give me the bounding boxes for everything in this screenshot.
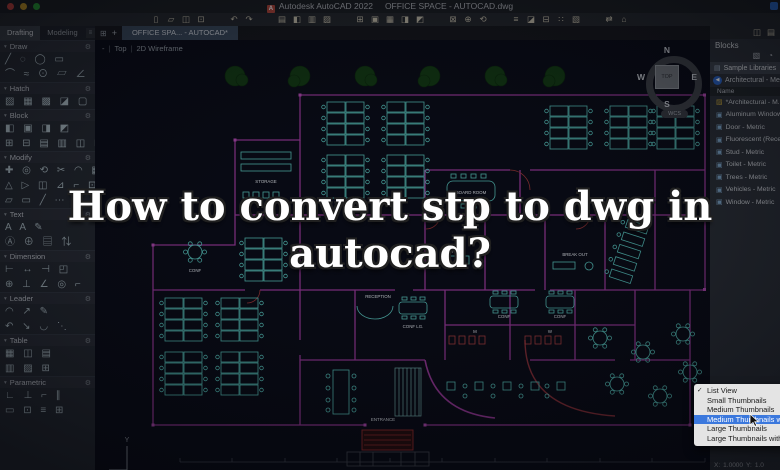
headline-line-1: How to convert stp to dwg in bbox=[0, 183, 780, 230]
palette-section: ▾ Parametric ⚙ ∟ ⊥ ⌐ ∥ ▭ ⊡ ≡ ⊞ bbox=[0, 376, 95, 418]
tool-icons-row[interactable]: ▥ ▨ ⊞ bbox=[0, 361, 95, 376]
room-label-womens: W bbox=[548, 329, 553, 334]
orbit-icon[interactable]: ⟲ bbox=[477, 13, 489, 26]
tool-icons-row[interactable]: ⊕ ⊥ ∠ ◎ ⌐ bbox=[0, 277, 95, 292]
x-value[interactable]: 1.0000 bbox=[723, 462, 743, 469]
block-icon: ▣ bbox=[716, 148, 723, 156]
collapse-arrow-icon: ▾ bbox=[4, 155, 7, 161]
block-icon: ▣ bbox=[716, 173, 723, 181]
menu-item-label: Medium Thumbnails wit bbox=[707, 415, 780, 424]
palette-section: ▾ Table ⚙ ▦ ◫ ▤ ▥ ▨ ⊞ bbox=[0, 334, 95, 376]
filter-folder-icon[interactable]: ▧ bbox=[753, 51, 761, 60]
compass-west-label[interactable]: W bbox=[637, 72, 645, 82]
ucs-y-axis-label: Y bbox=[125, 437, 130, 444]
room-label-entrance: ENTRANCE bbox=[371, 417, 395, 422]
blocks-panel-actions: ▧◔ bbox=[710, 50, 780, 62]
paste-icon[interactable]: ▧ bbox=[570, 13, 582, 26]
palette-section-label: Table bbox=[10, 336, 28, 345]
section-gear-icon[interactable]: ⚙ bbox=[85, 112, 91, 120]
app-title: Autodesk AutoCAD 2022 bbox=[279, 1, 373, 11]
block-list-item[interactable]: ▨ *Architectural - M... bbox=[710, 96, 780, 109]
title-bar: AAutodesk AutoCAD 2022OFFICE SPACE - AUT… bbox=[0, 0, 780, 13]
match-properties-icon[interactable]: ⊟ bbox=[540, 13, 552, 26]
block-list-item[interactable]: ▣ Door - Metric bbox=[710, 121, 780, 134]
tab-drafting[interactable]: Drafting bbox=[0, 26, 40, 40]
tool-icons-row[interactable]: ╱ ◌ ◯ ▭ bbox=[0, 52, 95, 67]
tab-modeling[interactable]: Modeling bbox=[40, 26, 84, 40]
menu-item-label: Medium Thumbnails bbox=[707, 405, 774, 414]
palette-section: ▾ Block ⚙ ◧ ▣ ◨ ◩ ⊞ ⊟ ▤ ▥ ◫ ⊠ bbox=[0, 109, 95, 151]
tool-icons-row[interactable]: ◧ ▣ ◨ ◩ bbox=[0, 121, 95, 136]
palette-section-header[interactable]: ▾ Modify ⚙ bbox=[0, 151, 95, 163]
current-library-row[interactable]: ◀ Architectural - Me... bbox=[710, 74, 780, 87]
properties-icon[interactable]: ◪ bbox=[525, 13, 537, 26]
block-list-item[interactable]: ▣ Toilet - Metric bbox=[710, 159, 780, 172]
sheet-set-icon[interactable]: ⇄ bbox=[603, 13, 615, 26]
tool-icons-row[interactable]: ⌒ ≈ ⊙ ▱ ∠ ◠ ⋱ bbox=[0, 67, 95, 82]
back-arrow-icon[interactable]: ◀ bbox=[713, 76, 722, 85]
menu-item-label: Large Thumbnails with bbox=[707, 434, 780, 443]
block-icon: ▣ bbox=[716, 136, 723, 144]
palette-section-header[interactable]: ▾ Draw ⚙ bbox=[0, 40, 95, 52]
tool-icons-row[interactable]: ◠ ↗ ✎ bbox=[0, 304, 95, 319]
collapse-arrow-icon: ▾ bbox=[4, 296, 7, 302]
y-value[interactable]: 1.0 bbox=[755, 462, 764, 469]
block-label: Toilet - Metric bbox=[726, 161, 766, 168]
palette-section-header[interactable]: ▾ Leader ⚙ bbox=[0, 292, 95, 304]
undo-icon[interactable]: ↶ bbox=[228, 13, 240, 26]
tool-icons-row[interactable]: ∟ ⊥ ⌐ ∥ bbox=[0, 388, 95, 403]
viewport-view-control[interactable]: Top bbox=[114, 44, 126, 53]
attach-xref-icon[interactable]: ▣ bbox=[369, 13, 381, 26]
pan-icon[interactable]: ⊕ bbox=[462, 13, 474, 26]
block-icon: ▣ bbox=[716, 161, 723, 169]
panel-dock-icon[interactable]: ◫ bbox=[753, 26, 761, 39]
quick-access-toolbar: ▯ ▱ ◫ ⊡ ↶ ↷ ▤ ◧ ▥ ▨ ⊞ ▣ ▦ bbox=[0, 13, 780, 26]
palette-section: ▾ Leader ⚙ ◠ ↗ ✎ ↶ ↘ ◡ ⋱ bbox=[0, 292, 95, 334]
tool-icons-row[interactable]: ▨ ▦ ▩ ◪ ▢ bbox=[0, 94, 95, 109]
autocad-app-icon: A bbox=[267, 5, 275, 13]
compass-south-label[interactable]: S bbox=[664, 99, 670, 109]
menu-item[interactable]: Small Thumbnails bbox=[694, 396, 780, 406]
view-cube[interactable]: N S W E TOP bbox=[638, 48, 696, 106]
zoom-window-icon[interactable]: ⊠ bbox=[447, 13, 459, 26]
publish-icon[interactable]: ▨ bbox=[321, 13, 333, 26]
purge-icon[interactable]: ⌂ bbox=[618, 13, 630, 26]
layer-properties-icon[interactable]: ≡ bbox=[510, 13, 522, 26]
headline-line-2: autocad? bbox=[0, 230, 780, 277]
section-gear-icon[interactable]: ⚙ bbox=[85, 295, 91, 303]
checkmark-icon: ✓ bbox=[697, 386, 702, 396]
tool-icons-row[interactable]: ✚ ◎ ⟲ ✂ ◠ ▦ bbox=[0, 163, 95, 178]
collapse-arrow-icon: ▾ bbox=[4, 338, 7, 344]
palette-section: ▾ Draw ⚙ ╱ ◌ ◯ ▭ ⌒ ≈ ⊙ ▱ ∠ ◠ ⋱ bbox=[0, 40, 95, 82]
compass-east-label[interactable]: E bbox=[691, 72, 697, 82]
section-gear-icon[interactable]: ⚙ bbox=[85, 337, 91, 345]
insertion-point-row: X: 1.0000 Y: 1.0 bbox=[710, 460, 780, 470]
palette-section: ▾ Hatch ⚙ ▨ ▦ ▩ ◪ ▢ bbox=[0, 82, 95, 109]
block-label: Stud - Metric bbox=[726, 149, 765, 156]
field-icon[interactable]: ◨ bbox=[399, 13, 411, 26]
palette-section-label: Hatch bbox=[10, 84, 30, 93]
block-label: Trees - Metric bbox=[726, 174, 768, 181]
palette-section-label: Modify bbox=[10, 153, 32, 162]
thumbnail-view-menu: ✓ List View Small Thumbnails Medium Thum… bbox=[694, 384, 780, 446]
save-icon[interactable]: ◫ bbox=[180, 13, 192, 26]
block-icon: ▨ bbox=[716, 98, 723, 106]
redo-icon[interactable]: ↷ bbox=[243, 13, 255, 26]
viewport-controls: - | Top | 2D Wireframe bbox=[102, 44, 183, 53]
block-label: Fluorescent (Rece... bbox=[726, 136, 780, 143]
viewport-pane-control[interactable]: - bbox=[102, 44, 105, 53]
name-column-header[interactable]: Name bbox=[710, 87, 780, 96]
plot-icon[interactable]: ◧ bbox=[291, 13, 303, 26]
print-icon[interactable]: ▤ bbox=[276, 13, 288, 26]
insert-block-icon[interactable]: ⊞ bbox=[354, 13, 366, 26]
new-file-icon[interactable]: ▯ bbox=[150, 13, 162, 26]
workspace-tabs: Drafting Modeling ≡ bbox=[0, 26, 95, 40]
viewport-separator: | bbox=[131, 44, 133, 53]
blocks-panel-title: Blocks bbox=[710, 39, 780, 50]
menu-item-label: Small Thumbnails bbox=[707, 396, 766, 405]
document-title: OFFICE SPACE - AUTOCAD.dwg bbox=[385, 1, 513, 11]
menu-item[interactable]: Large Thumbnails with bbox=[694, 434, 780, 444]
y-label: Y: bbox=[746, 462, 752, 469]
tool-icons-row[interactable]: ▦ ◫ ▤ bbox=[0, 346, 95, 361]
panel-menu-icon[interactable]: ▤ bbox=[767, 26, 775, 39]
palette-section-label: Block bbox=[10, 111, 28, 120]
open-folder-icon[interactable]: ▱ bbox=[165, 13, 177, 26]
palette-section-header[interactable]: ▾ Parametric ⚙ bbox=[0, 376, 95, 388]
attach-image-icon[interactable]: ▦ bbox=[384, 13, 396, 26]
section-gear-icon[interactable]: ⚙ bbox=[85, 379, 91, 387]
tool-icons-row[interactable]: ↶ ↘ ◡ ⋱ bbox=[0, 319, 95, 334]
palette-section-label: Leader bbox=[10, 294, 33, 303]
palette-section-header[interactable]: ▾ Block ⚙ bbox=[0, 109, 95, 121]
palette-section-label: Draw bbox=[10, 42, 28, 51]
new-drawing-tab-button[interactable]: + bbox=[112, 28, 117, 38]
menu-item[interactable]: Medium Thumbnails bbox=[694, 405, 780, 415]
block-list-item[interactable]: ▣ Trees - Metric bbox=[710, 171, 780, 184]
library-icon: ▤ bbox=[714, 64, 721, 72]
tool-icons-row[interactable]: ▭ ⊡ ≡ ⊞ bbox=[0, 403, 95, 418]
palette-overflow-icon[interactable]: ≡ bbox=[86, 28, 95, 38]
section-gear-icon[interactable]: ⚙ bbox=[85, 154, 91, 162]
active-drawing-tab[interactable]: OFFICE SPA... - AUTOCAD* bbox=[122, 26, 238, 40]
block-label: Aluminum Window... bbox=[726, 111, 780, 118]
autocad-window: AAutodesk AutoCAD 2022OFFICE SPACE - AUT… bbox=[0, 0, 780, 470]
save-as-icon[interactable]: ⊡ bbox=[195, 13, 207, 26]
block-label: *Architectural - M... bbox=[726, 99, 780, 106]
view-cube-top-face[interactable]: TOP bbox=[655, 65, 679, 89]
headline-text: How to convert stp to dwg in autocad? bbox=[0, 183, 780, 277]
tool-icons-row[interactable]: ⊞ ⊟ ▤ ▥ ◫ ⊠ bbox=[0, 136, 95, 151]
collapse-arrow-icon: ▾ bbox=[4, 44, 7, 50]
palette-section-label: Parametric bbox=[10, 378, 46, 387]
room-label-mens: M bbox=[473, 329, 477, 334]
page-setup-icon[interactable]: ▥ bbox=[306, 13, 318, 26]
block-list-item[interactable]: ▣ Fluorescent (Rece... bbox=[710, 134, 780, 147]
block-icon: ▣ bbox=[716, 123, 723, 131]
layout-grid-icon[interactable]: ⊞ bbox=[100, 29, 107, 38]
block-list-item[interactable]: ▣ Stud - Metric bbox=[710, 146, 780, 159]
collapse-arrow-icon: ▾ bbox=[4, 380, 7, 386]
blocks-panel-header-icons: ◫▤ bbox=[710, 26, 780, 39]
x-label: X: bbox=[714, 462, 720, 469]
wcs-menu[interactable]: WCS bbox=[661, 110, 688, 118]
menu-item[interactable]: Medium Thumbnails wit bbox=[694, 415, 780, 425]
section-gear-icon[interactable]: ⚙ bbox=[85, 43, 91, 51]
block-icon: ▣ bbox=[716, 111, 723, 119]
menu-item-label: List View bbox=[707, 386, 737, 395]
window-title: AAutodesk AutoCAD 2022OFFICE SPACE - AUT… bbox=[0, 1, 780, 13]
sample-libraries-label: Sample Libraries bbox=[724, 65, 777, 72]
notification-badge[interactable] bbox=[770, 2, 778, 10]
measure-icon[interactable]: ∷ bbox=[555, 13, 567, 26]
recent-clock-icon[interactable]: ◔ bbox=[768, 51, 773, 60]
room-label-conf-lg: CONF LG. bbox=[403, 324, 424, 329]
ole-object-icon[interactable]: ◩ bbox=[414, 13, 426, 26]
room-label-conf: CONF bbox=[554, 314, 567, 319]
collapse-arrow-icon: ▾ bbox=[4, 113, 7, 119]
block-list-item[interactable]: ▣ Aluminum Window... bbox=[710, 109, 780, 122]
section-gear-icon[interactable]: ⚙ bbox=[85, 85, 91, 93]
palette-section-header[interactable]: ▾ Table ⚙ bbox=[0, 334, 95, 346]
file-tab-bar: ⊞ + OFFICE SPA... - AUTOCAD* bbox=[95, 26, 710, 40]
viewport-style-control[interactable]: 2D Wireframe bbox=[137, 44, 183, 53]
menu-item[interactable]: Large Thumbnails bbox=[694, 424, 780, 434]
current-library-label: Architectural - Me... bbox=[725, 77, 780, 84]
menu-item[interactable]: ✓ List View bbox=[694, 386, 780, 396]
viewport-separator: | bbox=[109, 44, 111, 53]
mouse-cursor bbox=[749, 413, 760, 428]
room-label-conf: CONF bbox=[498, 314, 511, 319]
sample-libraries-row[interactable]: ▤ Sample Libraries bbox=[710, 62, 780, 74]
block-label: Door - Metric bbox=[726, 124, 765, 131]
collapse-arrow-icon: ▾ bbox=[4, 86, 7, 92]
palette-section-header[interactable]: ▾ Hatch ⚙ bbox=[0, 82, 95, 94]
room-label-reception: RECEPTION bbox=[365, 294, 391, 299]
compass-north-label[interactable]: N bbox=[664, 45, 670, 55]
